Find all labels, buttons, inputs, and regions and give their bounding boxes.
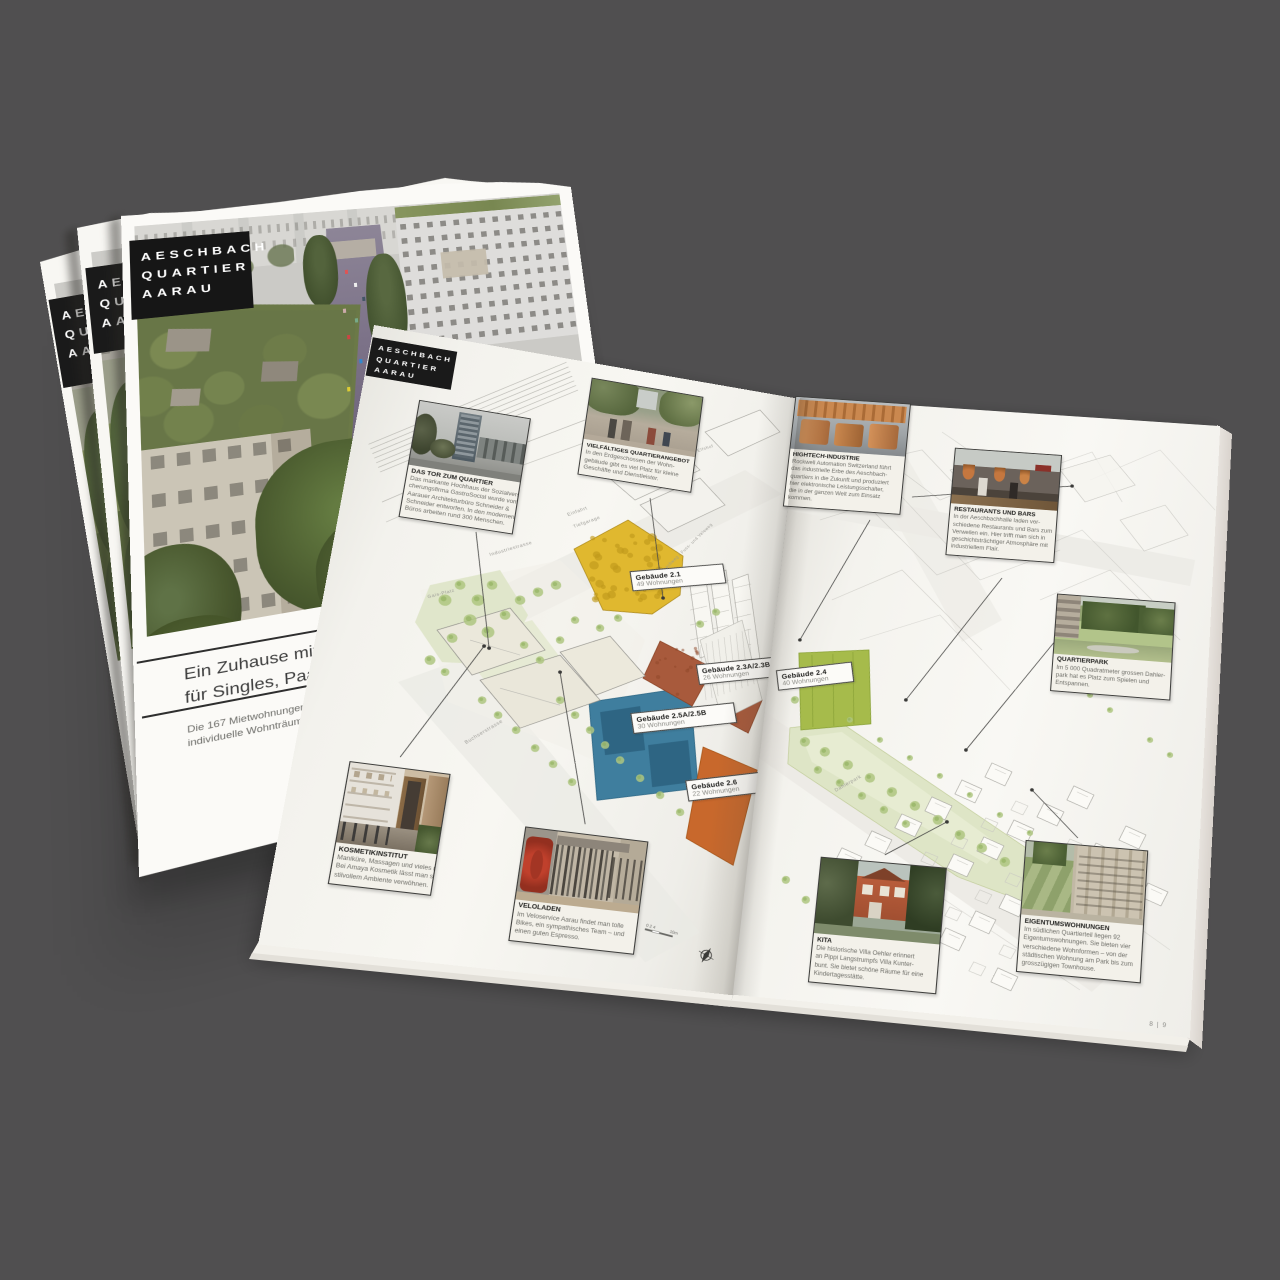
svg-text:Einfahrt: Einfahrt	[566, 506, 588, 518]
svg-text:Tiefgarage: Tiefgarage	[572, 515, 601, 530]
svg-text:Industriestrasse: Industriestrasse	[489, 540, 534, 558]
svg-text:Elfshof: Elfshof	[696, 443, 714, 452]
